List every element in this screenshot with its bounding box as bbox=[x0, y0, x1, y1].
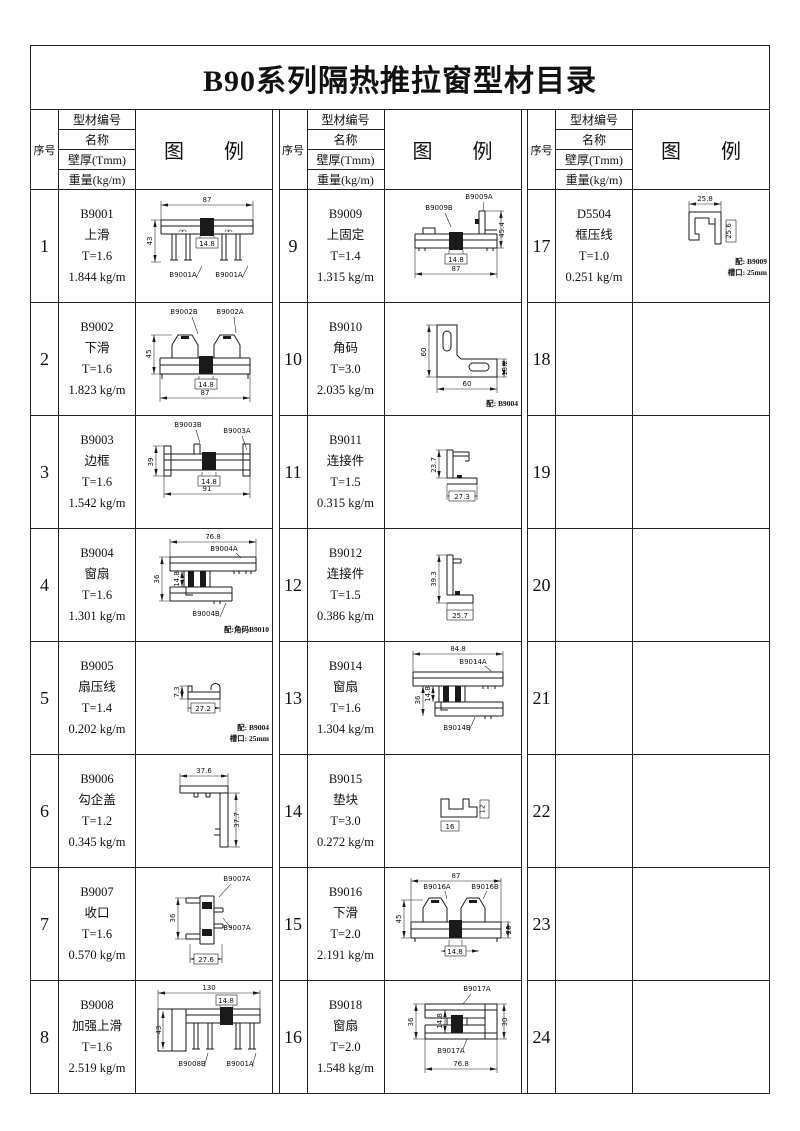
dim-width: 87 bbox=[451, 265, 460, 273]
profile-info: B9016 下滑 T=2.0 2.191 kg/m bbox=[308, 868, 385, 980]
table-row: 23 bbox=[528, 868, 769, 981]
row-number: 20 bbox=[528, 529, 556, 641]
table-row: 13 B9014 窗扇 T=1.6 1.304 kg/m bbox=[280, 642, 521, 755]
profile-info: D5504 框压线 T=1.0 0.251 kg/m bbox=[556, 190, 633, 302]
header-no: 序号 bbox=[528, 110, 556, 189]
part-label: B9001A bbox=[226, 1060, 254, 1068]
header-diagram: 图 例 bbox=[136, 110, 272, 189]
dim-center: 14.8 bbox=[173, 571, 181, 587]
dim-width: 27.2 bbox=[195, 705, 211, 713]
profile-weight: 2.191 kg/m bbox=[317, 945, 374, 966]
profile-weight: 0.251 kg/m bbox=[566, 267, 623, 288]
header-thickness: 壁厚(Tmm) bbox=[556, 150, 632, 170]
profile-name: 窗扇 bbox=[333, 677, 358, 698]
dim-center: 14.8 bbox=[424, 686, 432, 702]
profile-info: B9008 加强上滑 T=1.6 2.519 kg/m bbox=[59, 981, 136, 1093]
table-row: 18 bbox=[528, 303, 769, 416]
header-code: 型材编号 bbox=[556, 110, 632, 130]
table-row: 17 D5504 框压线 T=1.0 0.251 kg/m bbox=[528, 190, 769, 303]
diagram-b9018: B9017A 36 14.8 30 B9017A 76.8 bbox=[385, 981, 521, 1093]
diagram-note: 槽口: 25mm bbox=[728, 267, 768, 277]
table-row: 21 bbox=[528, 642, 769, 755]
profile-thickness: T=2.0 bbox=[330, 924, 360, 945]
table-row: 10 B9010 角码 T=3.0 2.035 kg/m bbox=[280, 303, 521, 416]
table-row: 6 B9006 勾企盖 T=1.2 0.345 kg/m bbox=[31, 755, 272, 868]
profile-name: 收口 bbox=[84, 903, 109, 924]
profile-name: 角码 bbox=[333, 338, 358, 359]
profile-weight: 0.315 kg/m bbox=[317, 493, 374, 514]
dim-height: 36 bbox=[414, 695, 422, 704]
table-row: 1 B9001 上滑 T=1.6 1.844 kg/m bbox=[31, 190, 272, 303]
table-row: 14 B9015 垫块 T=3.0 0.272 kg/m 16 bbox=[280, 755, 521, 868]
profile-weight: 1.823 kg/m bbox=[69, 380, 126, 401]
profile-info bbox=[556, 755, 633, 867]
profile-code: B9018 bbox=[329, 995, 362, 1016]
part-label: B9007A bbox=[223, 875, 251, 883]
table-row: 16 B9018 窗扇 T=2.0 1.548 kg/m bbox=[280, 981, 521, 1093]
table-row: 5 B9005 扇压线 T=1.4 0.202 kg/m bbox=[31, 642, 272, 755]
profile-code: B9016 bbox=[329, 882, 362, 903]
row-number: 8 bbox=[31, 981, 59, 1093]
profile-info: B9018 窗扇 T=2.0 1.548 kg/m bbox=[308, 981, 385, 1093]
profile-code: B9003 bbox=[80, 430, 113, 451]
dim-height: 37.7 bbox=[233, 812, 241, 828]
dim-center: 14.8 bbox=[447, 948, 463, 956]
page-title: B90系列隔热推拉窗型材目录 bbox=[31, 46, 769, 110]
dim-center: 14.8 bbox=[218, 997, 234, 1005]
header-name: 名称 bbox=[308, 130, 384, 150]
table-header: 序号 型材编号 名称 壁厚(Tmm) 重量(kg/m) 图 例 bbox=[31, 110, 272, 190]
dim-aux: 30 bbox=[501, 1018, 509, 1027]
header-info: 型材编号 名称 壁厚(Tmm) 重量(kg/m) bbox=[59, 110, 136, 189]
table-row: 24 bbox=[528, 981, 769, 1093]
profile-diagram-cell bbox=[633, 981, 769, 1093]
dim-width: 27.6 bbox=[198, 956, 214, 964]
profile-info: B9007 收口 T=1.6 0.570 kg/m bbox=[59, 868, 136, 980]
part-label: B9014A bbox=[459, 658, 487, 666]
dim-width: 87 bbox=[201, 389, 210, 397]
profile-weight: 2.035 kg/m bbox=[317, 380, 374, 401]
diagram-b9015: 16 12 bbox=[385, 755, 521, 867]
profile-code: B9011 bbox=[329, 430, 362, 451]
profile-diagram-cell bbox=[633, 642, 769, 754]
dim-height: 36 bbox=[153, 574, 161, 583]
catalog-table-1: 序号 型材编号 名称 壁厚(Tmm) 重量(kg/m) 图 例 1 B9001 … bbox=[31, 110, 273, 1093]
row-number: 18 bbox=[528, 303, 556, 415]
profile-info bbox=[556, 529, 633, 641]
row-number: 17 bbox=[528, 190, 556, 302]
header-thickness: 壁厚(Tmm) bbox=[59, 150, 135, 170]
row-number: 12 bbox=[280, 529, 308, 641]
diagram-b9002: B9002B B9002A 45 14.8 87 bbox=[136, 303, 272, 415]
profile-name: 框压线 bbox=[575, 225, 613, 246]
dim-height: 43 bbox=[146, 237, 154, 246]
profile-weight: 0.202 kg/m bbox=[69, 719, 126, 740]
profile-code: B9004 bbox=[80, 543, 113, 564]
profile-info: B9009 上固定 T=1.4 1.315 kg/m bbox=[308, 190, 385, 302]
profile-thickness: T=1.5 bbox=[330, 585, 360, 606]
profile-thickness: T=1.6 bbox=[82, 924, 112, 945]
profile-info bbox=[556, 303, 633, 415]
header-weight: 重量(kg/m) bbox=[308, 170, 384, 189]
table-row: 11 B9011 连接件 T=1.5 0.315 kg/m bbox=[280, 416, 521, 529]
dim-height: 60 bbox=[420, 348, 428, 357]
profile-code: B9006 bbox=[80, 769, 113, 790]
row-number: 2 bbox=[31, 303, 59, 415]
header-no: 序号 bbox=[31, 110, 59, 189]
row-number: 23 bbox=[528, 868, 556, 980]
dim-height: 43 bbox=[155, 1026, 163, 1035]
row-number: 16 bbox=[280, 981, 308, 1093]
row-number: 14 bbox=[280, 755, 308, 867]
row-number: 13 bbox=[280, 642, 308, 754]
diagram-note: 配: B9004 bbox=[237, 723, 269, 732]
profile-thickness: T=1.6 bbox=[82, 246, 112, 267]
profile-diagram-cell: 130 14.8 43 B9008B B9001A bbox=[136, 981, 272, 1093]
dim-height: 45.4 bbox=[498, 222, 506, 238]
profile-info bbox=[556, 416, 633, 528]
profile-weight: 0.345 kg/m bbox=[69, 832, 126, 853]
part-label: B9003B bbox=[174, 421, 202, 429]
profile-name: 上滑 bbox=[84, 225, 109, 246]
dim-center: 14.8 bbox=[199, 240, 215, 248]
row-number: 24 bbox=[528, 981, 556, 1093]
profile-name: 下滑 bbox=[333, 903, 358, 924]
part-label: B9001A bbox=[169, 271, 197, 279]
dim-center: 14.8 bbox=[448, 256, 464, 264]
row-number: 9 bbox=[280, 190, 308, 302]
profile-thickness: T=1.4 bbox=[82, 698, 112, 719]
profile-diagram-cell: B9017A 36 14.8 30 B9017A 76.8 bbox=[385, 981, 521, 1093]
diagram-b9007: B9007A 36 B9007A 27.6 bbox=[136, 868, 272, 980]
profile-diagram-cell: 39.3 25.7 bbox=[385, 529, 521, 641]
header-thickness: 壁厚(Tmm) bbox=[308, 150, 384, 170]
part-label: B9016A bbox=[423, 883, 451, 891]
profile-code: B9008 bbox=[80, 995, 113, 1016]
dim-height: 36 bbox=[169, 913, 177, 922]
profile-info: B9011 连接件 T=1.5 0.315 kg/m bbox=[308, 416, 385, 528]
profile-diagram-cell: 37.6 37.7 bbox=[136, 755, 272, 867]
row-number: 4 bbox=[31, 529, 59, 641]
diagram-note: 配: B9004 bbox=[486, 399, 518, 408]
profile-name: 扇压线 bbox=[78, 677, 116, 698]
row-number: 3 bbox=[31, 416, 59, 528]
table-row: 22 bbox=[528, 755, 769, 868]
header-no: 序号 bbox=[280, 110, 308, 189]
diagram-b9016: 87 B9016A B9016B 45 20 14.8 bbox=[385, 868, 521, 980]
catalog-tables: 序号 型材编号 名称 壁厚(Tmm) 重量(kg/m) 图 例 1 B9001 … bbox=[31, 110, 769, 1093]
part-label: B9009A bbox=[465, 193, 493, 201]
profile-name: 窗扇 bbox=[84, 564, 109, 585]
dim-height: 7.3 bbox=[173, 686, 181, 697]
header-code: 型材编号 bbox=[59, 110, 135, 130]
catalog-table-3: 序号 型材编号 名称 壁厚(Tmm) 重量(kg/m) 图 例 17 D5504… bbox=[527, 110, 769, 1093]
diagram-note: 配: B9009 bbox=[735, 257, 767, 266]
part-label: B9016B bbox=[471, 883, 499, 891]
dim-height: 23.7 bbox=[430, 457, 438, 473]
profile-name: 上固定 bbox=[327, 225, 365, 246]
profile-thickness: T=1.6 bbox=[82, 359, 112, 380]
profile-weight: 1.548 kg/m bbox=[317, 1058, 374, 1079]
profile-name: 勾企盖 bbox=[78, 790, 116, 811]
table-header: 序号 型材编号 名称 壁厚(Tmm) 重量(kg/m) 图 例 bbox=[280, 110, 521, 190]
profile-thickness: T=1.4 bbox=[330, 246, 360, 267]
dim-height: 45 bbox=[145, 350, 153, 359]
profile-info: B9014 窗扇 T=1.6 1.304 kg/m bbox=[308, 642, 385, 754]
part-label: B9004A bbox=[210, 545, 238, 553]
dim-center: 14.8 bbox=[436, 1013, 444, 1029]
profile-diagram-cell: B9002B B9002A 45 14.8 87 bbox=[136, 303, 272, 415]
row-number: 11 bbox=[280, 416, 308, 528]
table-row: 15 B9016 下滑 T=2.0 2.191 kg/m bbox=[280, 868, 521, 981]
profile-code: B9002 bbox=[80, 317, 113, 338]
table-row: 9 B9009 上固定 T=1.4 1.315 kg/m bbox=[280, 190, 521, 303]
diagram-b9014: 84.8 B9014A 36 14.8 B9014B bbox=[385, 642, 521, 754]
dim-height: 25.6 bbox=[725, 223, 733, 239]
header-weight: 重量(kg/m) bbox=[556, 170, 632, 189]
dim-height: 36 bbox=[407, 1017, 415, 1026]
dim-width: 130 bbox=[202, 984, 215, 992]
profile-diagram-cell: 60 60 13.2 配: B9004 bbox=[385, 303, 521, 415]
profile-diagram-cell: 25.8 25.6 配: B9009 槽口: 25mm bbox=[633, 190, 769, 302]
dim-center: 14.8 bbox=[198, 381, 214, 389]
profile-diagram-cell bbox=[633, 416, 769, 528]
dim-width: 60 bbox=[462, 380, 471, 388]
profile-weight: 0.570 kg/m bbox=[69, 945, 126, 966]
profile-name: 垫块 bbox=[333, 790, 358, 811]
profile-weight: 1.301 kg/m bbox=[69, 606, 126, 627]
profile-thickness: T=1.6 bbox=[82, 472, 112, 493]
profile-diagram-cell: 76.8 B9004A 36 14.8 B9004B 配:角码B9010 bbox=[136, 529, 272, 641]
profile-weight: 0.272 kg/m bbox=[317, 832, 374, 853]
dim-height: 39 bbox=[147, 458, 155, 467]
profile-thickness: T=1.6 bbox=[82, 1037, 112, 1058]
dim-width: 87 bbox=[451, 872, 460, 880]
profile-diagram-cell: 87 B9016A B9016B 45 20 14.8 bbox=[385, 868, 521, 980]
diagram-b9004: 76.8 B9004A 36 14.8 B9004B 配:角码B9010 bbox=[136, 529, 272, 641]
diagram-b9003: B9003B B9003A 39 14.8 91 bbox=[136, 416, 272, 528]
profile-code: B9001 bbox=[80, 204, 113, 225]
profile-name: 连接件 bbox=[327, 451, 365, 472]
row-number: 21 bbox=[528, 642, 556, 754]
part-label: B9009B bbox=[425, 204, 453, 212]
dim-aux: 20 bbox=[505, 926, 513, 935]
profile-code: D5504 bbox=[577, 204, 611, 225]
diagram-b9011: 23.7 27.3 bbox=[385, 416, 521, 528]
dim-aux: 12 bbox=[478, 805, 486, 814]
row-number: 6 bbox=[31, 755, 59, 867]
table-row: 3 B9003 边框 T=1.6 1.542 kg/m bbox=[31, 416, 272, 529]
profile-thickness: T=1.2 bbox=[82, 811, 112, 832]
diagram-b9006: 37.6 37.7 bbox=[136, 755, 272, 867]
diagram-d5504: 25.8 25.6 配: B9009 槽口: 25mm bbox=[633, 190, 769, 302]
profile-thickness: T=3.0 bbox=[330, 359, 360, 380]
profile-info: B9005 扇压线 T=1.4 0.202 kg/m bbox=[59, 642, 136, 754]
profile-thickness: T=2.0 bbox=[330, 1037, 360, 1058]
profile-code: B9007 bbox=[80, 882, 113, 903]
profile-thickness: T=1.0 bbox=[579, 246, 609, 267]
profile-diagram-cell: 87 43 14.8 B9001A B9001A bbox=[136, 190, 272, 302]
profile-name: 边框 bbox=[84, 451, 109, 472]
header-weight: 重量(kg/m) bbox=[59, 170, 135, 189]
profile-thickness: T=3.0 bbox=[330, 811, 360, 832]
profile-weight: 0.386 kg/m bbox=[317, 606, 374, 627]
table-row: 4 B9004 窗扇 T=1.6 1.301 kg/m bbox=[31, 529, 272, 642]
diagram-b9010: 60 60 13.2 配: B9004 bbox=[385, 303, 521, 415]
catalog-sheet: B90系列隔热推拉窗型材目录 序号 型材编号 名称 壁厚(Tmm) 重量(kg/… bbox=[30, 45, 770, 1094]
profile-thickness: T=1.5 bbox=[330, 472, 360, 493]
dim-width: 25.8 bbox=[697, 195, 713, 203]
diagram-b9009: B9009A B9009B 45.4 14.8 87 bbox=[385, 190, 521, 302]
diagram-b9012: 39.3 25.7 bbox=[385, 529, 521, 641]
profile-diagram-cell bbox=[633, 755, 769, 867]
header-code: 型材编号 bbox=[308, 110, 384, 130]
header-info: 型材编号 名称 壁厚(Tmm) 重量(kg/m) bbox=[556, 110, 633, 189]
dim-height: 45 bbox=[395, 915, 403, 924]
profile-weight: 1.844 kg/m bbox=[69, 267, 126, 288]
profile-weight: 1.542 kg/m bbox=[69, 493, 126, 514]
profile-info: B9015 垫块 T=3.0 0.272 kg/m bbox=[308, 755, 385, 867]
dim-width: 91 bbox=[203, 485, 212, 493]
profile-info: B9006 勾企盖 T=1.2 0.345 kg/m bbox=[59, 755, 136, 867]
profile-code: B9010 bbox=[329, 317, 362, 338]
profile-diagram-cell: B9009A B9009B 45.4 14.8 87 bbox=[385, 190, 521, 302]
profile-info: B9004 窗扇 T=1.6 1.301 kg/m bbox=[59, 529, 136, 641]
profile-weight: 1.315 kg/m bbox=[317, 267, 374, 288]
part-label: B9004B bbox=[192, 610, 220, 618]
dim-width: 25.7 bbox=[452, 612, 468, 620]
profile-weight: 1.304 kg/m bbox=[317, 719, 374, 740]
profile-name: 连接件 bbox=[327, 564, 365, 585]
profile-name: 下滑 bbox=[84, 338, 109, 359]
table-row: 8 B9008 加强上滑 T=1.6 2.519 kg/m bbox=[31, 981, 272, 1093]
diagram-note: 槽口: 25mm bbox=[230, 733, 270, 743]
header-name: 名称 bbox=[556, 130, 632, 150]
dim-width: 16 bbox=[445, 823, 454, 831]
profile-weight: 2.519 kg/m bbox=[69, 1058, 126, 1079]
dim-width: 87 bbox=[203, 196, 212, 204]
profile-geometry bbox=[180, 773, 240, 847]
profile-diagram-cell: 7.3 27.2 配: B9004 槽口: 25mm bbox=[136, 642, 272, 754]
profile-diagram-cell: 84.8 B9014A 36 14.8 B9014B bbox=[385, 642, 521, 754]
part-label: B9014B bbox=[443, 724, 471, 732]
profile-code: B9012 bbox=[329, 543, 362, 564]
profile-geometry bbox=[436, 555, 473, 620]
profile-code: B9014 bbox=[329, 656, 362, 677]
profile-info bbox=[556, 981, 633, 1093]
dim-width: 37.6 bbox=[196, 767, 212, 775]
profile-name: 加强上滑 bbox=[72, 1016, 122, 1037]
table-row: 2 B9002 下滑 T=1.6 1.823 kg/m bbox=[31, 303, 272, 416]
header-diagram: 图 例 bbox=[633, 110, 769, 189]
part-label: B9017A bbox=[463, 985, 491, 993]
profile-code: B9015 bbox=[329, 769, 362, 790]
profile-thickness: T=1.6 bbox=[330, 698, 360, 719]
profile-info: B9003 边框 T=1.6 1.542 kg/m bbox=[59, 416, 136, 528]
profile-diagram-cell bbox=[633, 868, 769, 980]
part-label: B9017A bbox=[437, 1047, 465, 1055]
dim-width: 76.8 bbox=[205, 533, 221, 541]
row-number: 10 bbox=[280, 303, 308, 415]
profile-thickness: T=1.6 bbox=[82, 585, 112, 606]
profile-code: B9009 bbox=[329, 204, 362, 225]
profile-diagram-cell: B9003B B9003A 39 14.8 91 bbox=[136, 416, 272, 528]
part-label: B9002A bbox=[216, 308, 244, 316]
row-number: 22 bbox=[528, 755, 556, 867]
catalog-table-2: 序号 型材编号 名称 壁厚(Tmm) 重量(kg/m) 图 例 9 B9009 … bbox=[279, 110, 522, 1093]
profile-diagram-cell bbox=[633, 529, 769, 641]
dim-height: 39.3 bbox=[430, 571, 438, 587]
row-number: 15 bbox=[280, 868, 308, 980]
profile-diagram-cell: 16 12 bbox=[385, 755, 521, 867]
diagram-note: 配:角码B9010 bbox=[224, 624, 269, 634]
dim-width: 27.3 bbox=[454, 493, 470, 501]
header-name: 名称 bbox=[59, 130, 135, 150]
dim-width: 76.8 bbox=[453, 1060, 469, 1068]
header-info: 型材编号 名称 壁厚(Tmm) 重量(kg/m) bbox=[308, 110, 385, 189]
profile-info bbox=[556, 868, 633, 980]
table-row: 20 bbox=[528, 529, 769, 642]
row-number: 19 bbox=[528, 416, 556, 528]
table-row: 12 B9012 连接件 T=1.5 0.386 kg/m bbox=[280, 529, 521, 642]
part-label: B9007A bbox=[223, 924, 251, 932]
profile-diagram-cell bbox=[633, 303, 769, 415]
diagram-b9005: 7.3 27.2 配: B9004 槽口: 25mm bbox=[136, 642, 272, 754]
profile-info: B9002 下滑 T=1.6 1.823 kg/m bbox=[59, 303, 136, 415]
row-number: 1 bbox=[31, 190, 59, 302]
profile-geometry bbox=[158, 990, 260, 1067]
header-diagram: 图 例 bbox=[385, 110, 521, 189]
row-number: 5 bbox=[31, 642, 59, 754]
part-label: B9002B bbox=[170, 308, 198, 316]
profile-info bbox=[556, 642, 633, 754]
diagram-b9001: 87 43 14.8 B9001A B9001A bbox=[136, 190, 272, 302]
diagram-b9008: 130 14.8 43 B9008B B9001A bbox=[136, 981, 272, 1093]
profile-diagram-cell: B9007A 36 B9007A 27.6 bbox=[136, 868, 272, 980]
part-label: B9001A bbox=[215, 271, 243, 279]
profile-info: B9010 角码 T=3.0 2.035 kg/m bbox=[308, 303, 385, 415]
part-label: B9008B bbox=[178, 1060, 206, 1068]
table-header: 序号 型材编号 名称 壁厚(Tmm) 重量(kg/m) 图 例 bbox=[528, 110, 769, 190]
profile-info: B9001 上滑 T=1.6 1.844 kg/m bbox=[59, 190, 136, 302]
dim-aux: 13.2 bbox=[501, 360, 509, 376]
dim-width: 84.8 bbox=[450, 645, 466, 653]
table-row: 7 B9007 收口 T=1.6 0.570 kg/m bbox=[31, 868, 272, 981]
table-row: 19 bbox=[528, 416, 769, 529]
profile-diagram-cell: 23.7 27.3 bbox=[385, 416, 521, 528]
profile-code: B9005 bbox=[80, 656, 113, 677]
profile-info: B9012 连接件 T=1.5 0.386 kg/m bbox=[308, 529, 385, 641]
profile-name: 窗扇 bbox=[333, 1016, 358, 1037]
row-number: 7 bbox=[31, 868, 59, 980]
profile-geometry bbox=[153, 430, 250, 498]
part-label: B9003A bbox=[223, 427, 251, 435]
